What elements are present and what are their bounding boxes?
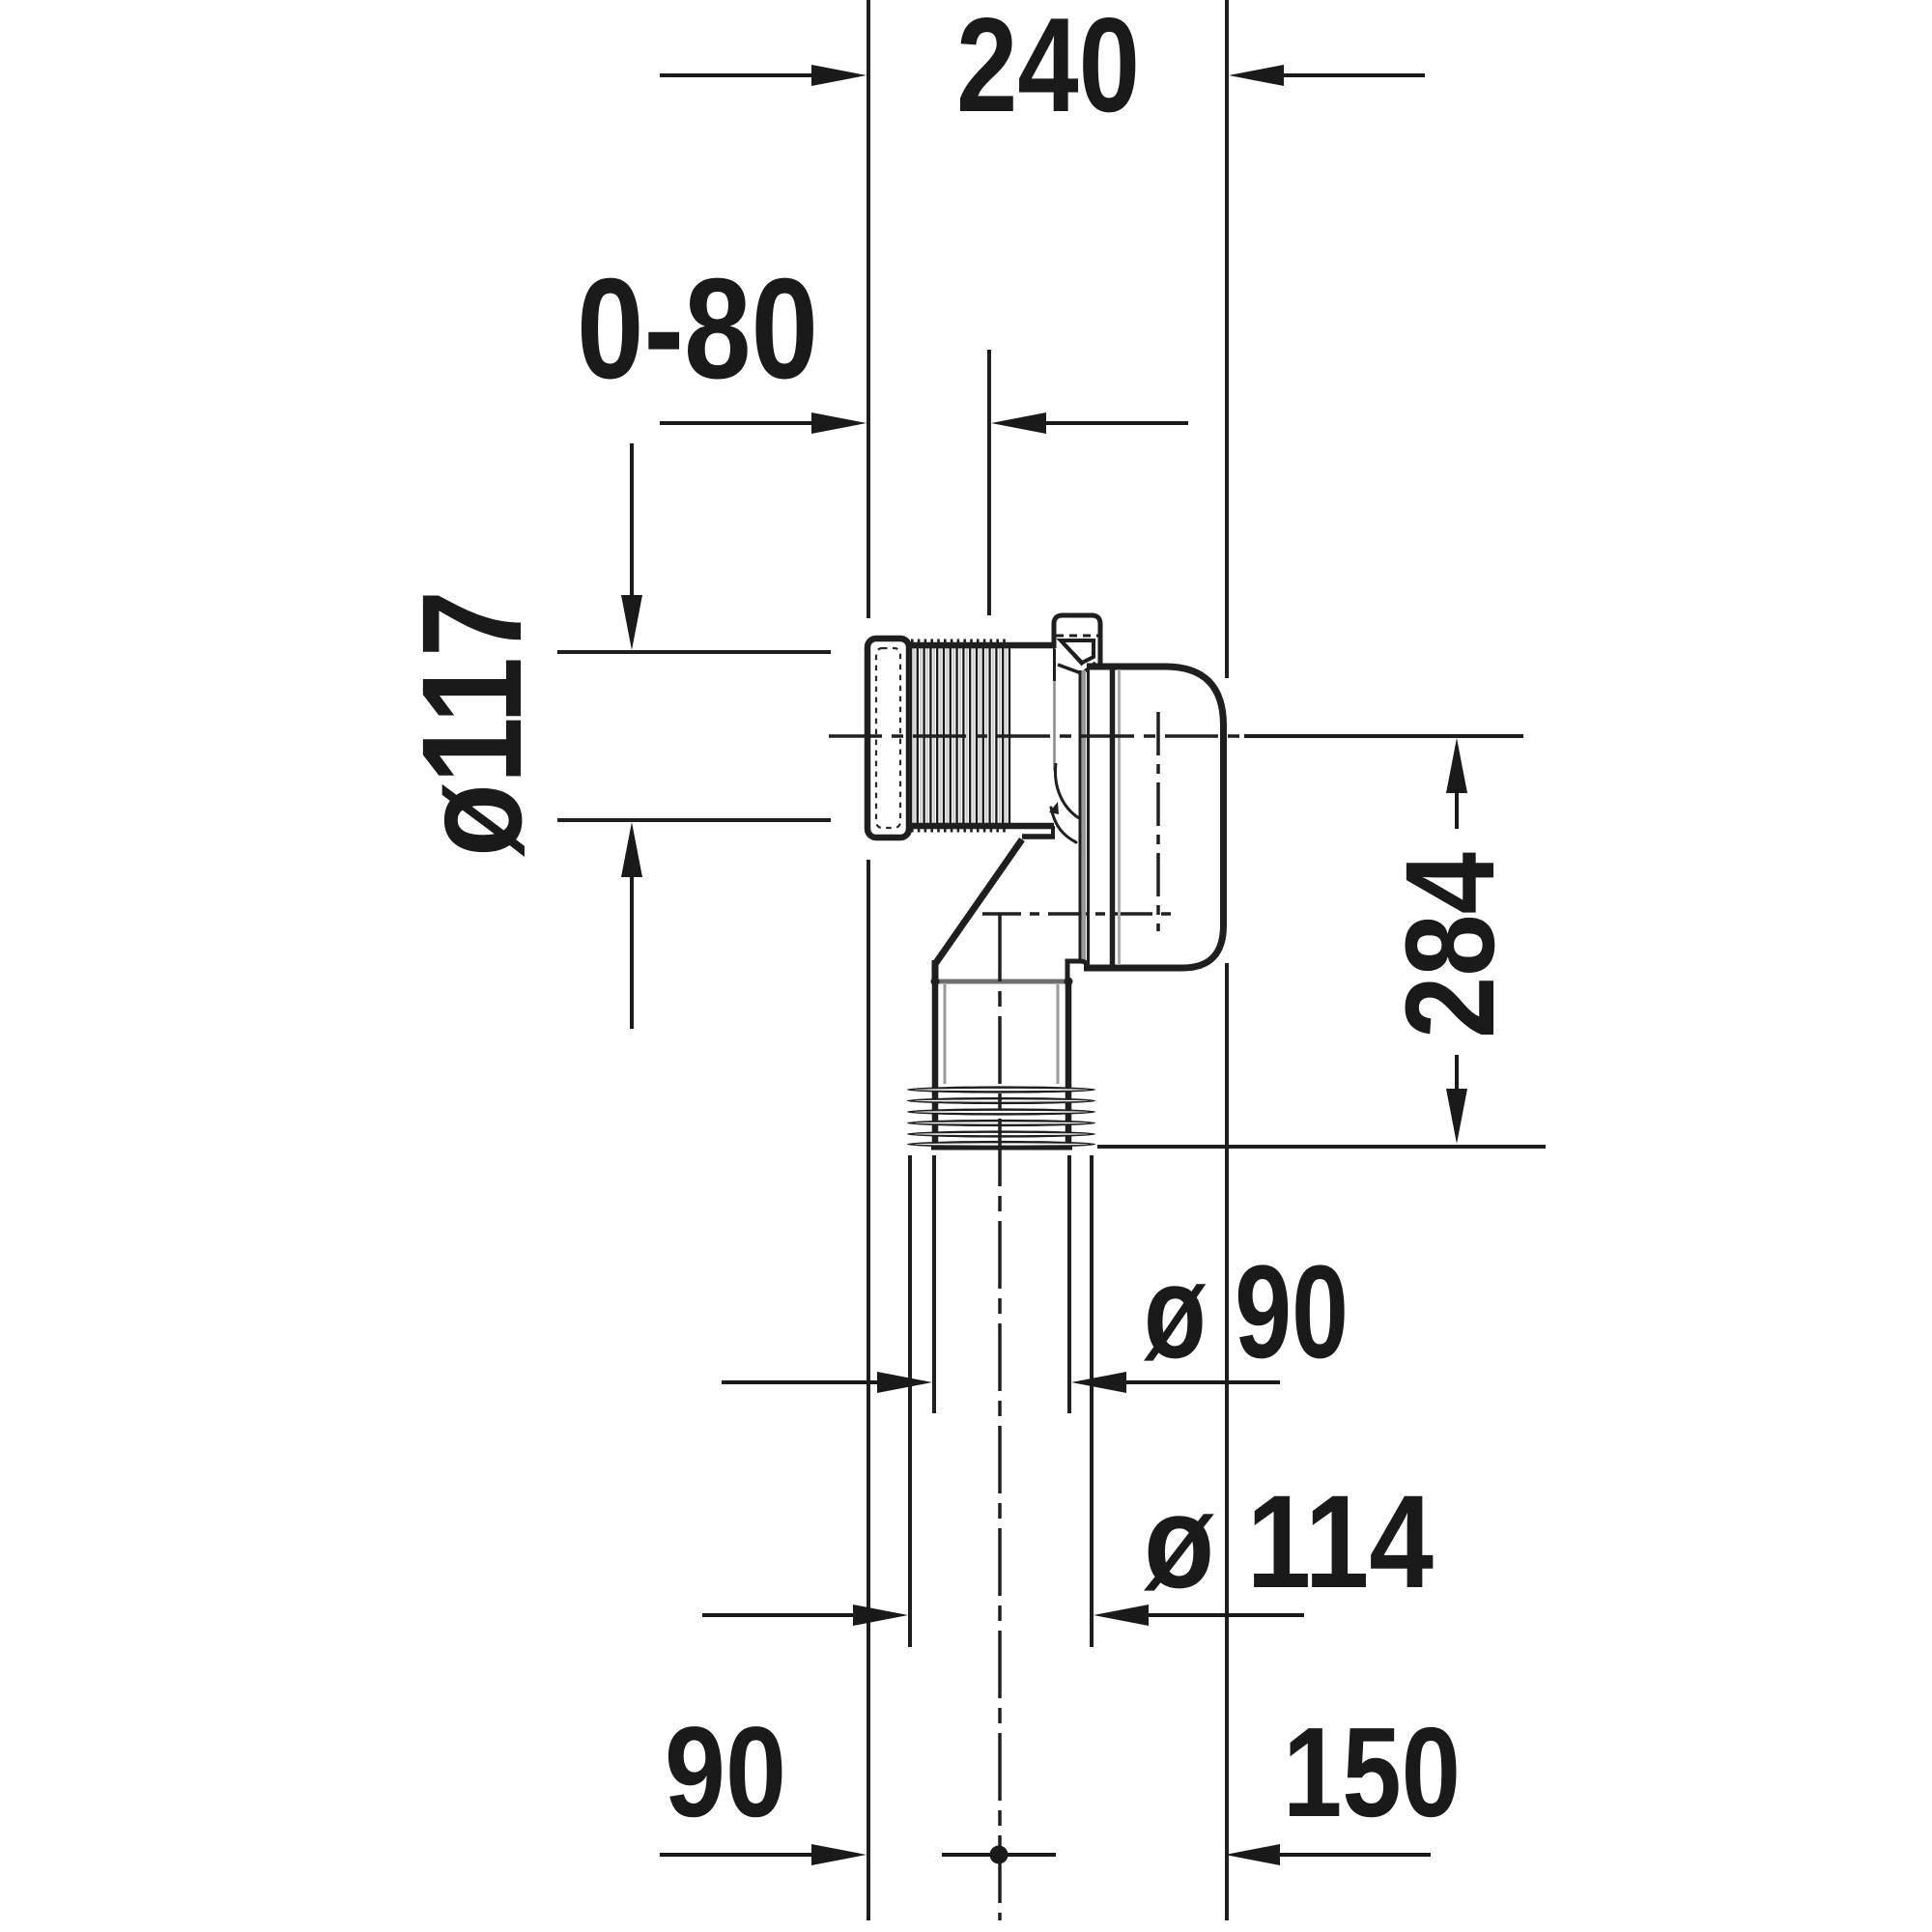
svg-text:ø 90: ø 90 <box>1144 1238 1349 1386</box>
svg-text:150: 150 <box>1283 1701 1461 1843</box>
svg-text:284: 284 <box>1378 852 1520 1038</box>
svg-text:0-80: 0-80 <box>577 249 818 409</box>
svg-text:90: 90 <box>665 1701 786 1844</box>
svg-text:240: 240 <box>956 0 1140 140</box>
svg-text:ø 114: ø 114 <box>1144 1468 1434 1616</box>
svg-text:ø117: ø117 <box>393 590 552 857</box>
